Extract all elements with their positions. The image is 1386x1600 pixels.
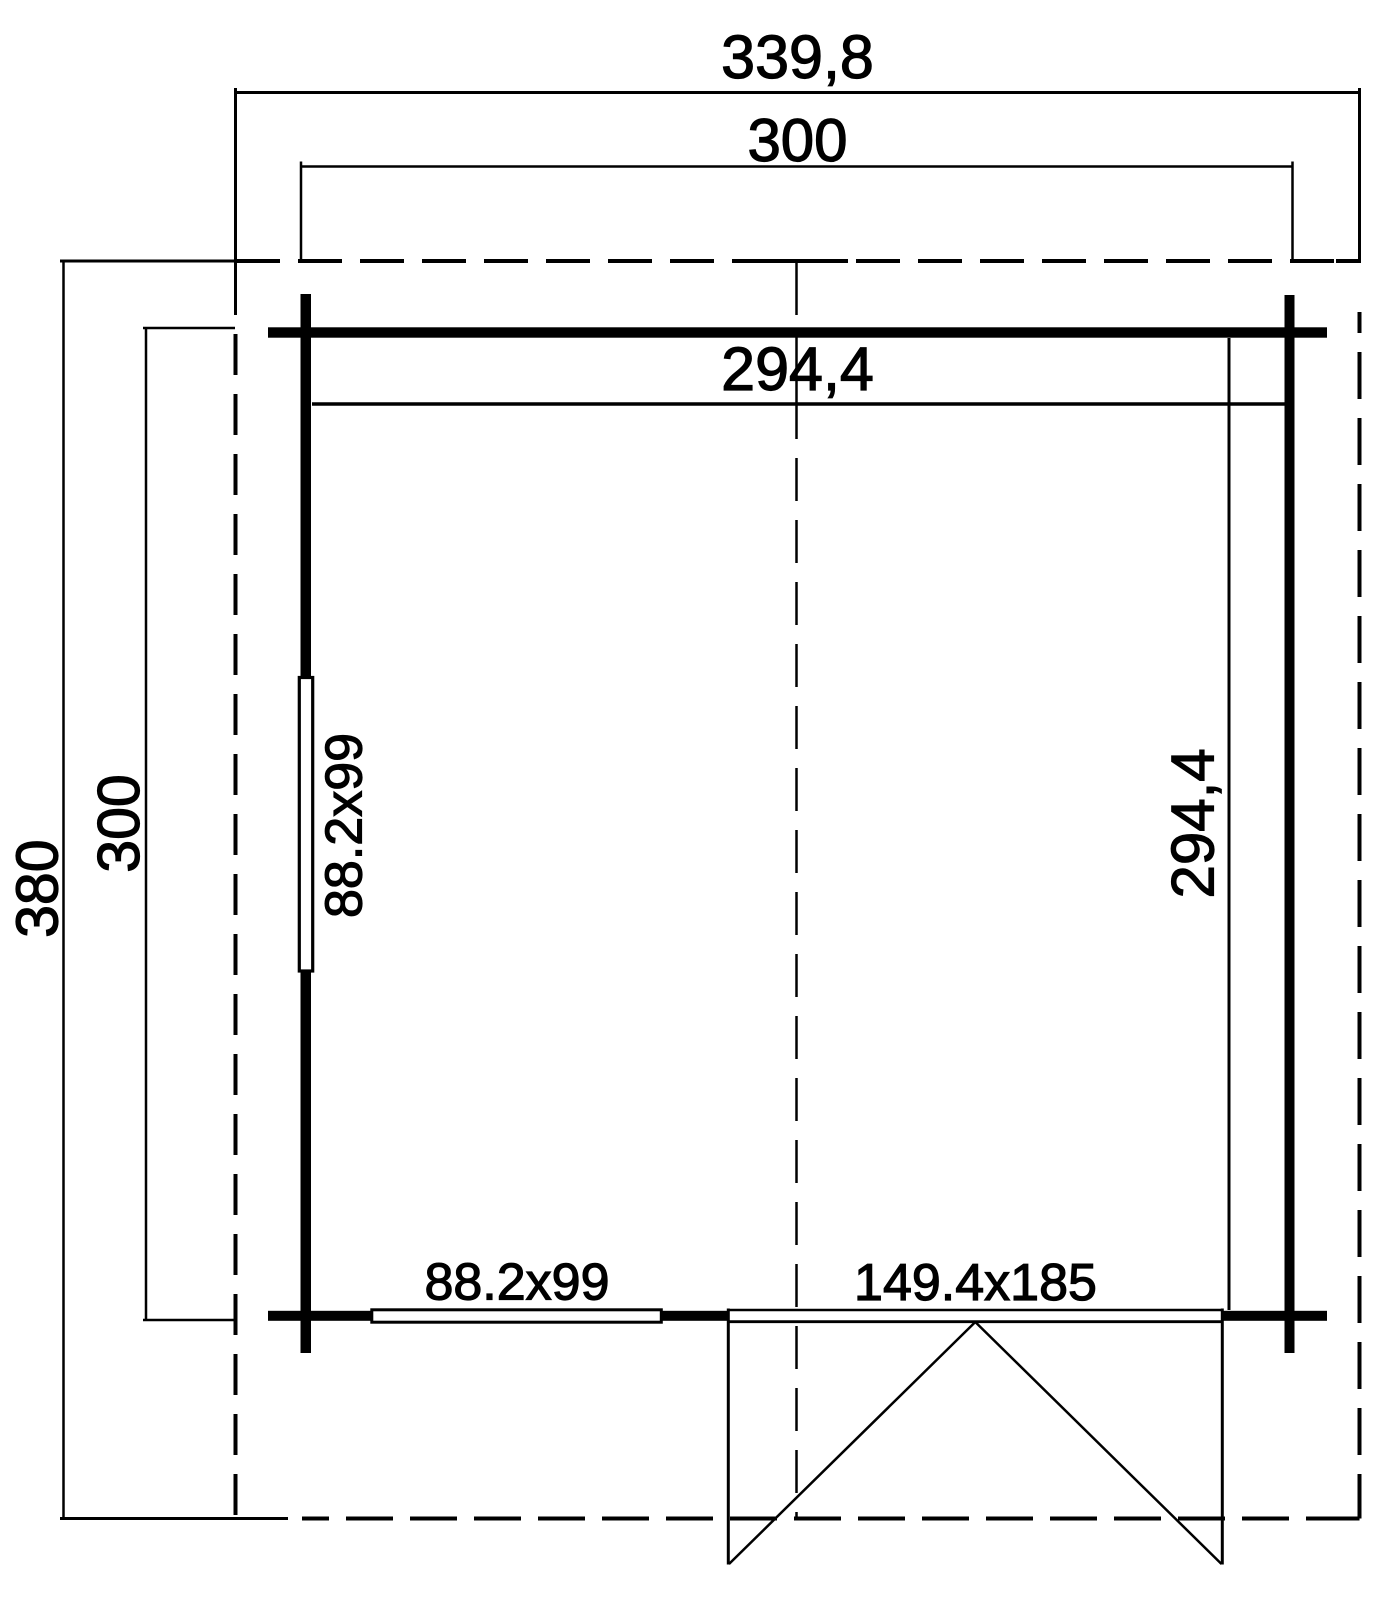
svg-text:300: 300 (747, 107, 847, 174)
svg-text:149.4x185: 149.4x185 (854, 1254, 1097, 1312)
svg-text:380: 380 (5, 839, 71, 937)
svg-text:339,8: 339,8 (721, 23, 874, 91)
svg-text:88.2x99: 88.2x99 (316, 733, 374, 918)
svg-text:88.2x99: 88.2x99 (424, 1254, 609, 1312)
svg-text:300: 300 (86, 774, 152, 872)
svg-text:294,4: 294,4 (1160, 748, 1227, 898)
svg-text:294,4: 294,4 (721, 335, 874, 403)
